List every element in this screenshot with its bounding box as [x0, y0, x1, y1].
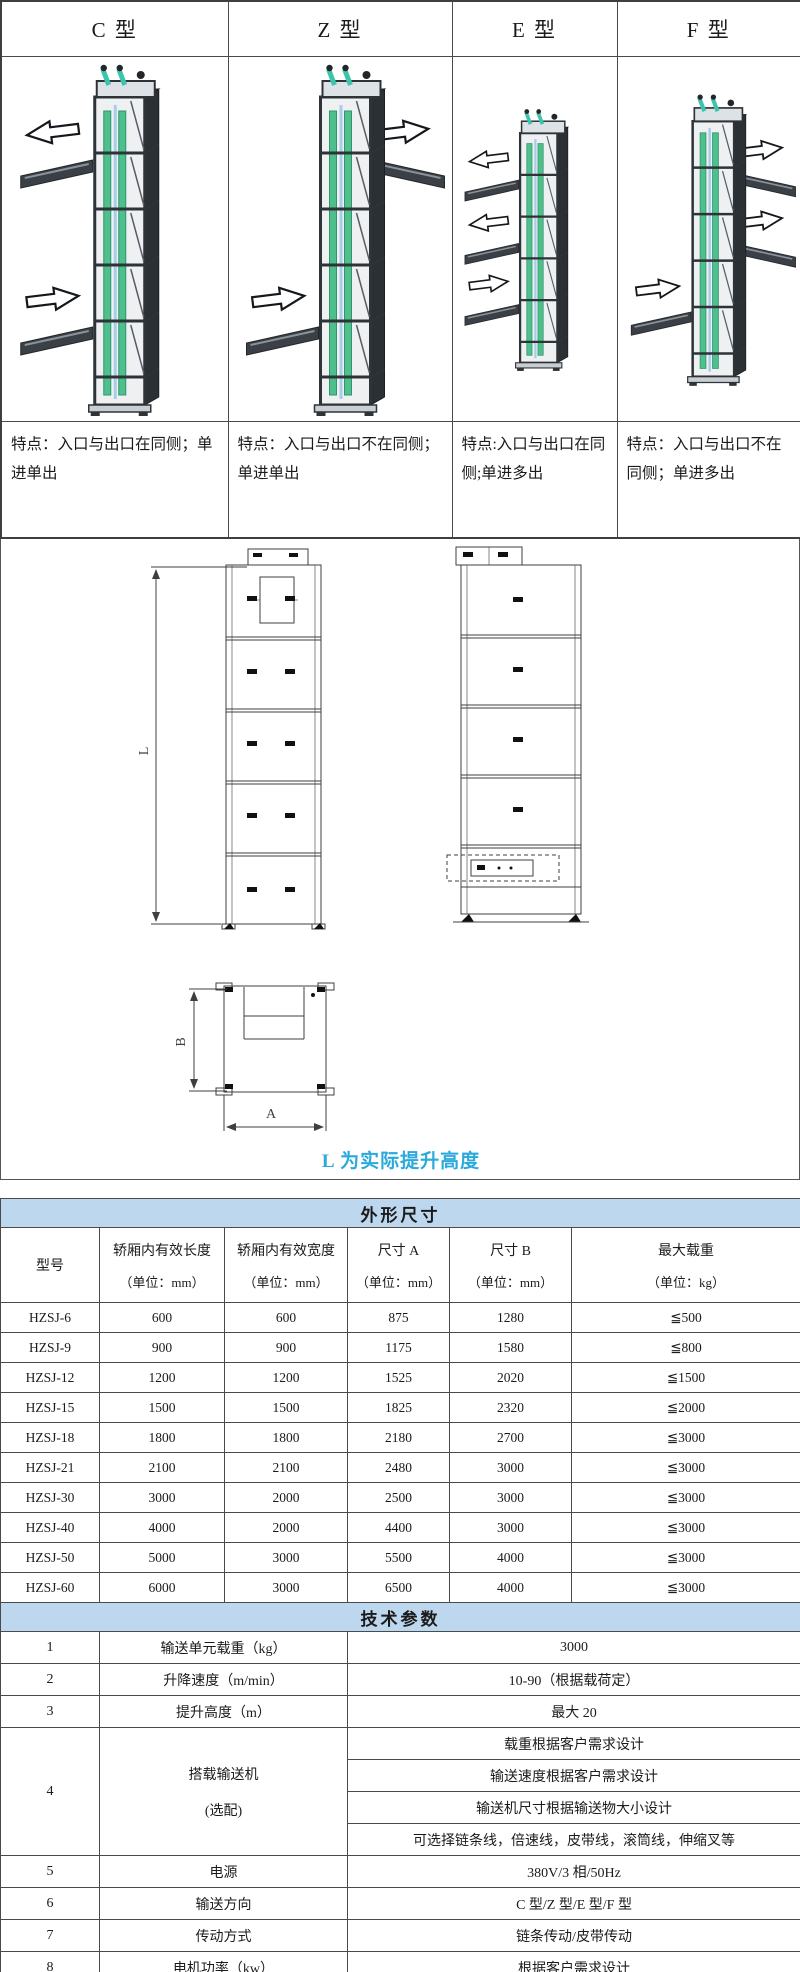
param-no: 7 — [1, 1920, 100, 1952]
value-cell: ≦3000 — [572, 1423, 800, 1453]
dim-row-HZSJ-50: HZSJ-505000300055004000≦3000 — [1, 1543, 800, 1573]
dim-label-depth: B — [174, 1037, 189, 1046]
model-cell: HZSJ-21 — [1, 1453, 100, 1483]
value-cell: 4000 — [450, 1543, 572, 1573]
param-no: 6 — [1, 1888, 100, 1920]
model-cell: HZSJ-6 — [1, 1303, 100, 1333]
dim-col-header-2: 轿厢内有效宽度（单位：mm） — [225, 1228, 348, 1303]
flow-arrow-icon — [468, 149, 508, 170]
model-cell: HZSJ-50 — [1, 1543, 100, 1573]
param-value: 可选择链条线，倍速线，皮带线，滚筒线，伸缩叉等 — [348, 1824, 800, 1856]
param-value: 载重根据客户需求设计 — [348, 1728, 800, 1760]
param-value: 输送速度根据客户需求设计 — [348, 1760, 800, 1792]
value-cell: 3000 — [450, 1513, 572, 1543]
model-cell: HZSJ-12 — [1, 1363, 100, 1393]
lift-3d-drawing — [229, 59, 452, 419]
value-cell: ≦2000 — [572, 1393, 800, 1423]
value-cell: 6500 — [348, 1573, 450, 1603]
lift-3d-drawing — [618, 59, 800, 419]
type-header-row: C 型Z 型E 型F 型 — [1, 1, 800, 57]
tech-row-8: 8电机功率（kw）根据客户需求设计 — [1, 1952, 800, 1972]
value-cell: 4000 — [450, 1573, 572, 1603]
dim-col-unit: （单位：mm） — [349, 1272, 448, 1291]
dim-col-name: 轿厢内有效宽度 — [226, 1240, 346, 1260]
dim-col-unit: （单位：mm） — [101, 1272, 223, 1291]
dim-row-HZSJ-30: HZSJ-303000200025003000≦3000 — [1, 1483, 800, 1513]
dim-col-header-5: 最大载重（单位：kg） — [572, 1228, 800, 1303]
machine-drawing-3 — [618, 59, 800, 419]
dimension-column-header-row: 型号轿厢内有效长度（单位：mm）轿厢内有效宽度（单位：mm）尺寸 A（单位：mm… — [1, 1228, 800, 1303]
value-cell: 900 — [100, 1333, 225, 1363]
dim-row-HZSJ-18: HZSJ-181800180021802700≦3000 — [1, 1423, 800, 1453]
type-label-1: Z 型 — [228, 1, 452, 57]
value-cell: 1500 — [225, 1393, 348, 1423]
side-elevation-view — [447, 547, 589, 922]
tech-row-5: 5电源380V/3 相/50Hz — [1, 1856, 800, 1888]
value-cell: 2480 — [348, 1453, 450, 1483]
value-cell: 2500 — [348, 1483, 450, 1513]
tech-table-title: 技术参数 — [1, 1603, 800, 1632]
value-cell: 3000 — [225, 1543, 348, 1573]
value-cell: ≦3000 — [572, 1453, 800, 1483]
param-no: 1 — [1, 1632, 100, 1664]
value-cell: 2100 — [225, 1453, 348, 1483]
machine-cell-2 — [452, 57, 617, 422]
dim-col-name: 尺寸 B — [451, 1240, 570, 1260]
param-name: 提升高度（m） — [100, 1696, 348, 1728]
dim-col-header-0: 型号 — [1, 1228, 100, 1303]
value-cell: 1500 — [100, 1393, 225, 1423]
feature-text-3: 特点：入口与出口不在同侧；单进多出 — [617, 422, 800, 539]
param-name: 输送单元载重（kg） — [100, 1632, 348, 1664]
dim-label-height: L — [137, 747, 152, 756]
param-value: 最大 20 — [348, 1696, 800, 1728]
dim-col-unit: （单位：kg） — [573, 1272, 799, 1291]
model-cell: HZSJ-40 — [1, 1513, 100, 1543]
flow-arrow-icon — [468, 273, 508, 294]
param-name-line1: 电源 — [101, 1862, 346, 1882]
param-value: 输送机尺寸根据输送物大小设计 — [348, 1792, 800, 1824]
value-cell: 4400 — [348, 1513, 450, 1543]
flow-arrow-icon — [635, 277, 680, 300]
param-name-line1: 输送方向 — [101, 1894, 346, 1914]
dim-col-header-1: 轿厢内有效长度（单位：mm） — [100, 1228, 225, 1303]
value-cell: 2700 — [450, 1423, 572, 1453]
machine-cell-3 — [617, 57, 800, 422]
dim-row-HZSJ-60: HZSJ-606000300065004000≦3000 — [1, 1573, 800, 1603]
model-cell: HZSJ-18 — [1, 1423, 100, 1453]
dim-row-HZSJ-12: HZSJ-121200120015252020≦1500 — [1, 1363, 800, 1393]
lift-3d-drawing — [2, 59, 228, 419]
value-cell: 600 — [100, 1303, 225, 1333]
value-cell: 1525 — [348, 1363, 450, 1393]
param-name: 升降速度（m/min） — [100, 1664, 348, 1696]
value-cell: 2020 — [450, 1363, 572, 1393]
param-name-line1: 提升高度（m） — [101, 1702, 346, 1722]
plan-view: B A — [174, 983, 334, 1131]
dim-col-header-3: 尺寸 A（单位：mm） — [348, 1228, 450, 1303]
tech-table-title-row: 技术参数 — [1, 1603, 800, 1632]
value-cell: ≦3000 — [572, 1543, 800, 1573]
param-value: 链条传动/皮带传动 — [348, 1920, 800, 1952]
tech-row-3: 3提升高度（m）最大 20 — [1, 1696, 800, 1728]
lift-3d-drawing — [453, 59, 617, 419]
dim-row-HZSJ-9: HZSJ-990090011751580≦800 — [1, 1333, 800, 1363]
dim-col-name: 型号 — [2, 1255, 98, 1275]
param-value: 3000 — [348, 1632, 800, 1664]
param-value: 根据客户需求设计 — [348, 1952, 800, 1972]
dim-row-HZSJ-15: HZSJ-151500150018252320≦2000 — [1, 1393, 800, 1423]
param-name: 输送方向 — [100, 1888, 348, 1920]
value-cell: ≦1500 — [572, 1363, 800, 1393]
value-cell: 1800 — [100, 1423, 225, 1453]
value-cell: 2100 — [100, 1453, 225, 1483]
dim-row-HZSJ-6: HZSJ-66006008751280≦500 — [1, 1303, 800, 1333]
dimension-drawing-section: L — [0, 539, 800, 1180]
model-cell: HZSJ-9 — [1, 1333, 100, 1363]
dim-col-unit: （单位：mm） — [226, 1272, 346, 1291]
feature-text-0: 特点：入口与出口在同侧；单进单出 — [1, 422, 228, 539]
value-cell: 1200 — [225, 1363, 348, 1393]
param-no: 2 — [1, 1664, 100, 1696]
model-cell: HZSJ-30 — [1, 1483, 100, 1513]
param-no: 3 — [1, 1696, 100, 1728]
param-value: 380V/3 相/50Hz — [348, 1856, 800, 1888]
drawing-caption: L 为实际提升高度 — [322, 1149, 480, 1172]
flow-arrow-icon — [468, 212, 508, 233]
value-cell: 3000 — [450, 1483, 572, 1513]
type-feature-row: 特点：入口与出口在同侧；单进单出特点：入口与出口不在同侧；单进单出特点:入口与出… — [1, 422, 800, 539]
value-cell: 6000 — [100, 1573, 225, 1603]
dim-col-unit: （单位：mm） — [451, 1272, 570, 1291]
tech-row-6: 6输送方向C 型/Z 型/E 型/F 型 — [1, 1888, 800, 1920]
type-label-3: F 型 — [617, 1, 800, 57]
dim-col-name: 轿厢内有效长度 — [101, 1240, 223, 1260]
param-name-line1: 传动方式 — [101, 1926, 346, 1946]
type-image-row — [1, 57, 800, 422]
cad-drawing: L — [1, 539, 799, 1179]
dimension-table: 外形尺寸 型号轿厢内有效长度（单位：mm）轿厢内有效宽度（单位：mm）尺寸 A（… — [0, 1198, 800, 1603]
tech-row-2: 2升降速度（m/min）10-90（根据载荷定） — [1, 1664, 800, 1696]
value-cell: 3000 — [100, 1483, 225, 1513]
value-cell: ≦800 — [572, 1333, 800, 1363]
value-cell: 600 — [225, 1303, 348, 1333]
param-name: 传动方式 — [100, 1920, 348, 1952]
value-cell: 3000 — [225, 1573, 348, 1603]
param-value: C 型/Z 型/E 型/F 型 — [348, 1888, 800, 1920]
value-cell: 1580 — [450, 1333, 572, 1363]
value-cell: 3000 — [450, 1453, 572, 1483]
value-cell: 1280 — [450, 1303, 572, 1333]
param-name-line1: 电机功率（kw） — [101, 1958, 346, 1972]
param-name-line2: (选配) — [101, 1800, 346, 1820]
type-label-2: E 型 — [452, 1, 617, 57]
dim-col-name: 尺寸 A — [349, 1240, 448, 1260]
value-cell: ≦3000 — [572, 1513, 800, 1543]
value-cell: 875 — [348, 1303, 450, 1333]
value-cell: 2320 — [450, 1393, 572, 1423]
machine-cell-1 — [228, 57, 452, 422]
flow-arrow-icon — [251, 285, 305, 313]
param-name: 搭载输送机(选配) — [100, 1728, 348, 1856]
param-name: 电机功率（kw） — [100, 1952, 348, 1972]
machine-drawing-2 — [453, 59, 617, 419]
value-cell: 1175 — [348, 1333, 450, 1363]
feature-text-1: 特点：入口与出口不在同侧；单进单出 — [228, 422, 452, 539]
value-cell: 1200 — [100, 1363, 225, 1393]
value-cell: 2180 — [348, 1423, 450, 1453]
flow-arrow-icon — [26, 118, 80, 146]
dim-row-HZSJ-40: HZSJ-404000200044003000≦3000 — [1, 1513, 800, 1543]
value-cell: 1800 — [225, 1423, 348, 1453]
dimension-table-title-row: 外形尺寸 — [1, 1199, 800, 1228]
dim-label-width: A — [266, 1107, 277, 1122]
machine-drawing-0 — [2, 59, 228, 419]
param-value: 10-90（根据载荷定） — [348, 1664, 800, 1696]
tech-parameter-table: 技术参数 1输送单元载重（kg）30002升降速度（m/min）10-90（根据… — [0, 1602, 800, 1972]
value-cell: ≦3000 — [572, 1573, 800, 1603]
front-elevation-view: L — [137, 549, 325, 929]
feature-text-2: 特点:入口与出口在同侧;单进多出 — [452, 422, 617, 539]
param-name: 电源 — [100, 1856, 348, 1888]
dim-row-HZSJ-21: HZSJ-212100210024803000≦3000 — [1, 1453, 800, 1483]
tech-row-4-0: 4搭载输送机(选配)载重根据客户需求设计 — [1, 1728, 800, 1760]
value-cell: 2000 — [225, 1483, 348, 1513]
param-name-line1: 搭载输送机 — [101, 1764, 346, 1784]
value-cell: ≦500 — [572, 1303, 800, 1333]
param-name-line1: 升降速度（m/min） — [101, 1670, 346, 1690]
machine-cell-0 — [1, 57, 228, 422]
value-cell: 4000 — [100, 1513, 225, 1543]
param-no: 4 — [1, 1728, 100, 1856]
dim-col-header-4: 尺寸 B（单位：mm） — [450, 1228, 572, 1303]
value-cell: 1825 — [348, 1393, 450, 1423]
lift-type-table: C 型Z 型E 型F 型 — [0, 0, 800, 539]
flow-arrow-icon — [26, 285, 80, 313]
param-name-line1: 输送单元载重（kg） — [101, 1638, 346, 1658]
value-cell: ≦3000 — [572, 1483, 800, 1513]
value-cell: 2000 — [225, 1513, 348, 1543]
tech-row-7: 7传动方式链条传动/皮带传动 — [1, 1920, 800, 1952]
model-cell: HZSJ-15 — [1, 1393, 100, 1423]
machine-drawing-1 — [229, 59, 452, 419]
dimension-table-title: 外形尺寸 — [1, 1199, 800, 1228]
value-cell: 5000 — [100, 1543, 225, 1573]
model-cell: HZSJ-60 — [1, 1573, 100, 1603]
value-cell: 5500 — [348, 1543, 450, 1573]
page: C 型Z 型E 型F 型 — [0, 0, 800, 1972]
type-label-0: C 型 — [1, 1, 228, 57]
param-no: 8 — [1, 1952, 100, 1972]
value-cell: 900 — [225, 1333, 348, 1363]
param-no: 5 — [1, 1856, 100, 1888]
tech-row-1: 1输送单元载重（kg）3000 — [1, 1632, 800, 1664]
dim-col-name: 最大载重 — [573, 1240, 799, 1260]
